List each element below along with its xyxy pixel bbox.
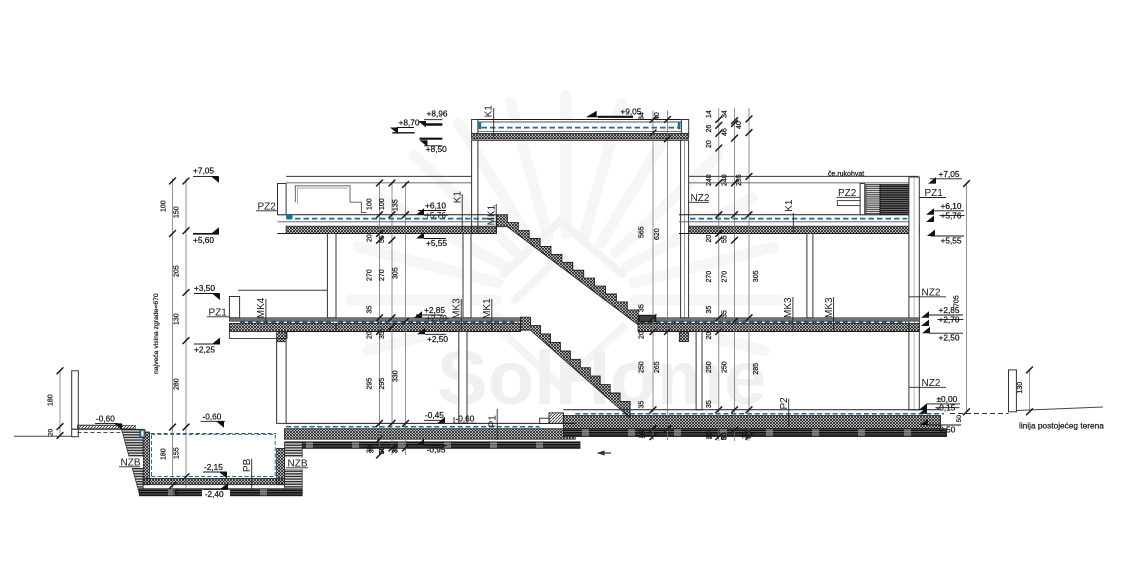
svg-text:270: 270 bbox=[379, 269, 386, 281]
svg-text:20: 20 bbox=[706, 140, 713, 148]
svg-text:305: 305 bbox=[753, 270, 760, 282]
svg-text:-0,45: -0,45 bbox=[425, 410, 444, 420]
svg-text:35: 35 bbox=[707, 432, 714, 440]
svg-text:SolHome: SolHome bbox=[437, 336, 766, 421]
svg-text:K1: K1 bbox=[483, 105, 494, 118]
svg-text:-2,15: -2,15 bbox=[204, 462, 223, 472]
svg-text:20: 20 bbox=[706, 332, 713, 340]
svg-text:100: 100 bbox=[367, 198, 374, 210]
svg-text:250: 250 bbox=[706, 361, 713, 373]
svg-text:-0,50: -0,50 bbox=[937, 425, 956, 435]
svg-text:295: 295 bbox=[379, 378, 386, 390]
svg-text:+8,50: +8,50 bbox=[426, 144, 447, 154]
svg-text:35: 35 bbox=[392, 446, 399, 454]
svg-text:+7,05: +7,05 bbox=[193, 166, 214, 176]
svg-text:+8,96: +8,96 bbox=[427, 109, 448, 119]
svg-text:330: 330 bbox=[393, 370, 400, 382]
svg-text:35: 35 bbox=[706, 400, 713, 408]
svg-text:20: 20 bbox=[706, 235, 713, 243]
svg-text:25: 25 bbox=[173, 488, 180, 496]
svg-text:40: 40 bbox=[654, 112, 661, 120]
svg-text:-0,95: -0,95 bbox=[427, 444, 446, 454]
svg-text:+3,50: +3,50 bbox=[194, 283, 215, 293]
svg-text:50: 50 bbox=[956, 415, 963, 423]
svg-text:20: 20 bbox=[367, 234, 374, 242]
svg-text:280: 280 bbox=[174, 378, 181, 390]
svg-text:100: 100 bbox=[161, 200, 168, 212]
svg-text:620: 620 bbox=[654, 228, 661, 240]
svg-text:565: 565 bbox=[639, 226, 646, 238]
svg-text:240: 240 bbox=[706, 174, 713, 186]
svg-text:270: 270 bbox=[722, 271, 729, 283]
svg-text:+9,05: +9,05 bbox=[620, 106, 641, 116]
svg-text:+8,70: +8,70 bbox=[399, 117, 420, 127]
svg-text:+5,55: +5,55 bbox=[941, 236, 962, 246]
svg-text:14: 14 bbox=[706, 110, 713, 118]
svg-text:+2,50: +2,50 bbox=[427, 334, 448, 344]
svg-text:35: 35 bbox=[369, 446, 376, 454]
svg-text:-0,60: -0,60 bbox=[456, 414, 475, 424]
svg-text:20: 20 bbox=[639, 331, 646, 339]
svg-text:155: 155 bbox=[174, 447, 181, 459]
svg-text:26: 26 bbox=[706, 125, 713, 133]
svg-text:35: 35 bbox=[722, 310, 729, 318]
svg-text:46: 46 bbox=[722, 128, 729, 136]
svg-text:+5,60: +5,60 bbox=[193, 235, 214, 245]
svg-text:-2,40: -2,40 bbox=[205, 489, 224, 499]
svg-text:180: 180 bbox=[48, 394, 55, 406]
svg-text:150: 150 bbox=[174, 206, 181, 218]
svg-text:295: 295 bbox=[736, 174, 743, 186]
svg-text:+6,10: +6,10 bbox=[941, 201, 962, 211]
svg-text:+7,05: +7,05 bbox=[939, 169, 960, 179]
svg-text:285: 285 bbox=[753, 363, 760, 375]
svg-text:250: 250 bbox=[722, 361, 729, 373]
svg-text:180: 180 bbox=[161, 448, 168, 460]
svg-text:305: 305 bbox=[393, 267, 400, 279]
svg-text:270: 270 bbox=[706, 271, 713, 283]
svg-text:50: 50 bbox=[379, 447, 386, 455]
svg-text:270: 270 bbox=[367, 269, 374, 281]
svg-text:K1: K1 bbox=[784, 199, 795, 212]
svg-text:295: 295 bbox=[367, 378, 374, 390]
svg-text:-0,60: -0,60 bbox=[96, 413, 115, 423]
svg-text:20: 20 bbox=[367, 331, 374, 339]
svg-text:250: 250 bbox=[639, 361, 646, 373]
svg-text:35: 35 bbox=[706, 306, 713, 314]
svg-text:+5,55: +5,55 bbox=[426, 238, 447, 248]
svg-text:35: 35 bbox=[367, 306, 374, 314]
svg-text:50: 50 bbox=[721, 432, 728, 440]
svg-text:265: 265 bbox=[654, 361, 661, 373]
svg-text:30: 30 bbox=[640, 431, 647, 439]
svg-text:40: 40 bbox=[736, 121, 743, 129]
svg-text:240: 240 bbox=[722, 174, 729, 186]
svg-text:205: 205 bbox=[174, 265, 181, 277]
svg-text:35: 35 bbox=[379, 331, 386, 339]
svg-text:linija postojećeg terena: linija postojećeg terena bbox=[1019, 421, 1104, 431]
svg-text:35: 35 bbox=[639, 401, 646, 409]
svg-text:55: 55 bbox=[722, 235, 729, 243]
svg-text:+2,50: +2,50 bbox=[939, 333, 960, 343]
svg-text:+2,25: +2,25 bbox=[194, 345, 215, 355]
svg-text:najveća visina zgrade=670: najveća visina zgrade=670 bbox=[153, 293, 160, 374]
svg-text:če.rukohvat: če.rukohvat bbox=[828, 171, 864, 178]
svg-text:55: 55 bbox=[379, 235, 386, 243]
svg-text:-0,60: -0,60 bbox=[203, 411, 222, 421]
svg-text:130: 130 bbox=[174, 313, 181, 325]
svg-text:+6,10: +6,10 bbox=[425, 201, 446, 211]
svg-text:100: 100 bbox=[379, 198, 386, 210]
svg-text:20: 20 bbox=[48, 428, 55, 436]
svg-text:34: 34 bbox=[722, 110, 729, 118]
svg-text:35: 35 bbox=[639, 304, 646, 312]
svg-text:135: 135 bbox=[393, 199, 400, 211]
svg-text:35: 35 bbox=[742, 431, 749, 439]
svg-text:130: 130 bbox=[1017, 382, 1024, 394]
